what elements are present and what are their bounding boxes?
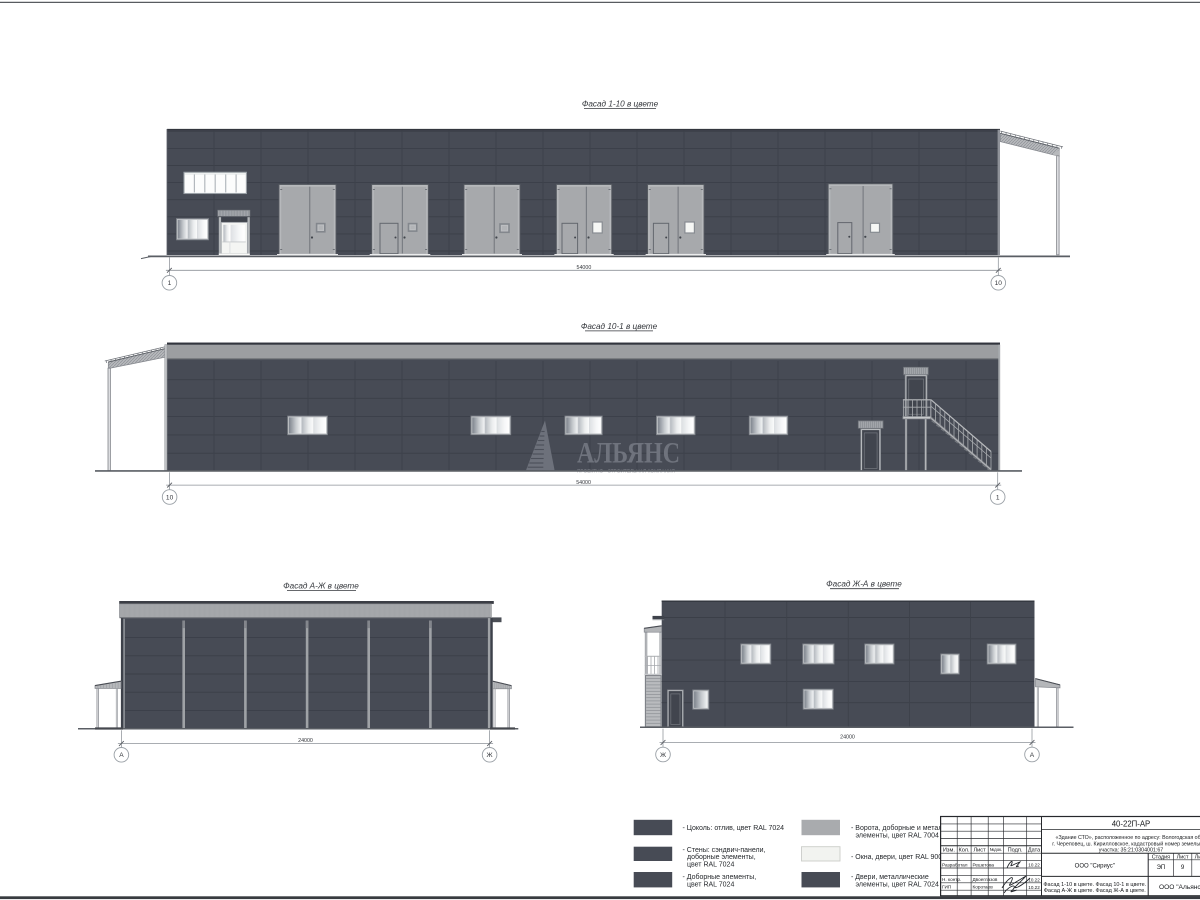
svg-text:Разработал: Разработал [942,862,968,867]
svg-text:54000: 54000 [576,480,591,486]
svg-text:Подп.: Подп. [1008,847,1023,853]
svg-text:Н. контр.: Н. контр. [942,877,961,882]
svg-text:Лист: Лист [1177,855,1189,861]
svg-text:Стадия: Стадия [1152,855,1170,861]
svg-text:ООО "Сириус": ООО "Сириус" [1075,864,1115,870]
svg-text:Ж: Ж [660,752,666,759]
svg-text:ГИП: ГИП [942,885,951,890]
svg-text:24000: 24000 [298,738,313,744]
svg-text:54000: 54000 [577,265,592,271]
svg-text:Решетова: Решетова [973,862,995,867]
svg-text:г. Череповец, ш. Кирилловское,: г. Череповец, ш. Кирилловское, кадастров… [1052,840,1200,847]
svg-text:Фасад Ж-А в цвете: Фасад Ж-А в цвете [826,580,902,589]
svg-text:1: 1 [996,494,1000,501]
svg-text:Фасад 1-10 в цвете. Фасад 10-1: Фасад 1-10 в цвете. Фасад 10-1 в цвете. [1043,882,1146,888]
svg-text:- Ворота, доборные и металл.: - Ворота, доборные и металл. [851,824,948,832]
svg-text:«Здание СТО», расположенное по: «Здание СТО», расположенное по адресу: В… [1056,835,1200,841]
svg-text:№док.: №док. [989,847,1002,852]
svg-text:А: А [119,752,124,759]
svg-text:Фасад А-Ж в цвете. Фасад Ж-А в: Фасад А-Ж в цвете. Фасад Ж-А в цвете. [1044,888,1147,894]
svg-text:- Доборные элементы,: - Доборные элементы, [683,873,757,881]
svg-text:- Окна, двери, цвет RAL 9003: - Окна, двери, цвет RAL 9003 [851,854,946,861]
svg-text:ЭП: ЭП [1156,864,1165,871]
svg-text:24000: 24000 [840,734,855,740]
svg-text:Лист: Лист [974,847,987,853]
svg-text:10: 10 [166,494,174,501]
svg-text:участка: 35:21:0304001:67: участка: 35:21:0304001:67 [1099,847,1164,853]
svg-text:Ж: Ж [487,752,493,759]
svg-text:Двоеглазов: Двоеглазов [973,877,998,882]
svg-text:10.22: 10.22 [1028,885,1040,890]
svg-text:элементы, цвет RAL 7024: элементы, цвет RAL 7024 [856,881,940,888]
svg-text:элементы, цвет RAL 7004: элементы, цвет RAL 7004 [856,832,940,839]
svg-text:- Двери, металлические: - Двери, металлические [851,874,929,881]
svg-text:цвет RAL 7024: цвет RAL 7024 [687,861,734,868]
svg-text:Дата: Дата [1028,847,1041,853]
svg-text:9: 9 [1181,864,1185,871]
svg-text:А: А [1030,752,1035,759]
svg-text:10.22: 10.22 [1028,863,1040,868]
svg-text:Фасад А-Ж в цвете: Фасад А-Ж в цвете [283,581,359,590]
svg-text:Изм.: Изм. [943,847,955,853]
svg-text:1: 1 [168,280,172,287]
svg-text:Коротаев: Коротаев [973,885,994,890]
svg-text:Фасад 10-1 в цвете: Фасад 10-1 в цвете [581,322,658,331]
svg-text:Кол.: Кол. [959,847,971,853]
svg-text:- Цоколь: отлив, цвет RAL 7024: - Цоколь: отлив, цвет RAL 7024 [683,825,785,832]
svg-text:доборные элементы,: доборные элементы, [687,853,756,861]
svg-text:10: 10 [995,280,1003,287]
svg-text:40-22П-АР: 40-22П-АР [1112,819,1151,828]
svg-text:- Стены: сэндвич-панели,: - Стены: сэндвич-панели, [683,847,766,854]
svg-text:ООО "Альянс-Проект": ООО "Альянс-Проект" [1159,884,1200,891]
svg-text:АЛЬЯНС: АЛЬЯНС [577,437,680,470]
svg-text:Листов: Листов [1195,855,1200,861]
svg-text:цвет RAL 7024: цвет RAL 7024 [687,881,734,888]
svg-text:Фасад 1-10 в цвете: Фасад 1-10 в цвете [582,100,659,109]
